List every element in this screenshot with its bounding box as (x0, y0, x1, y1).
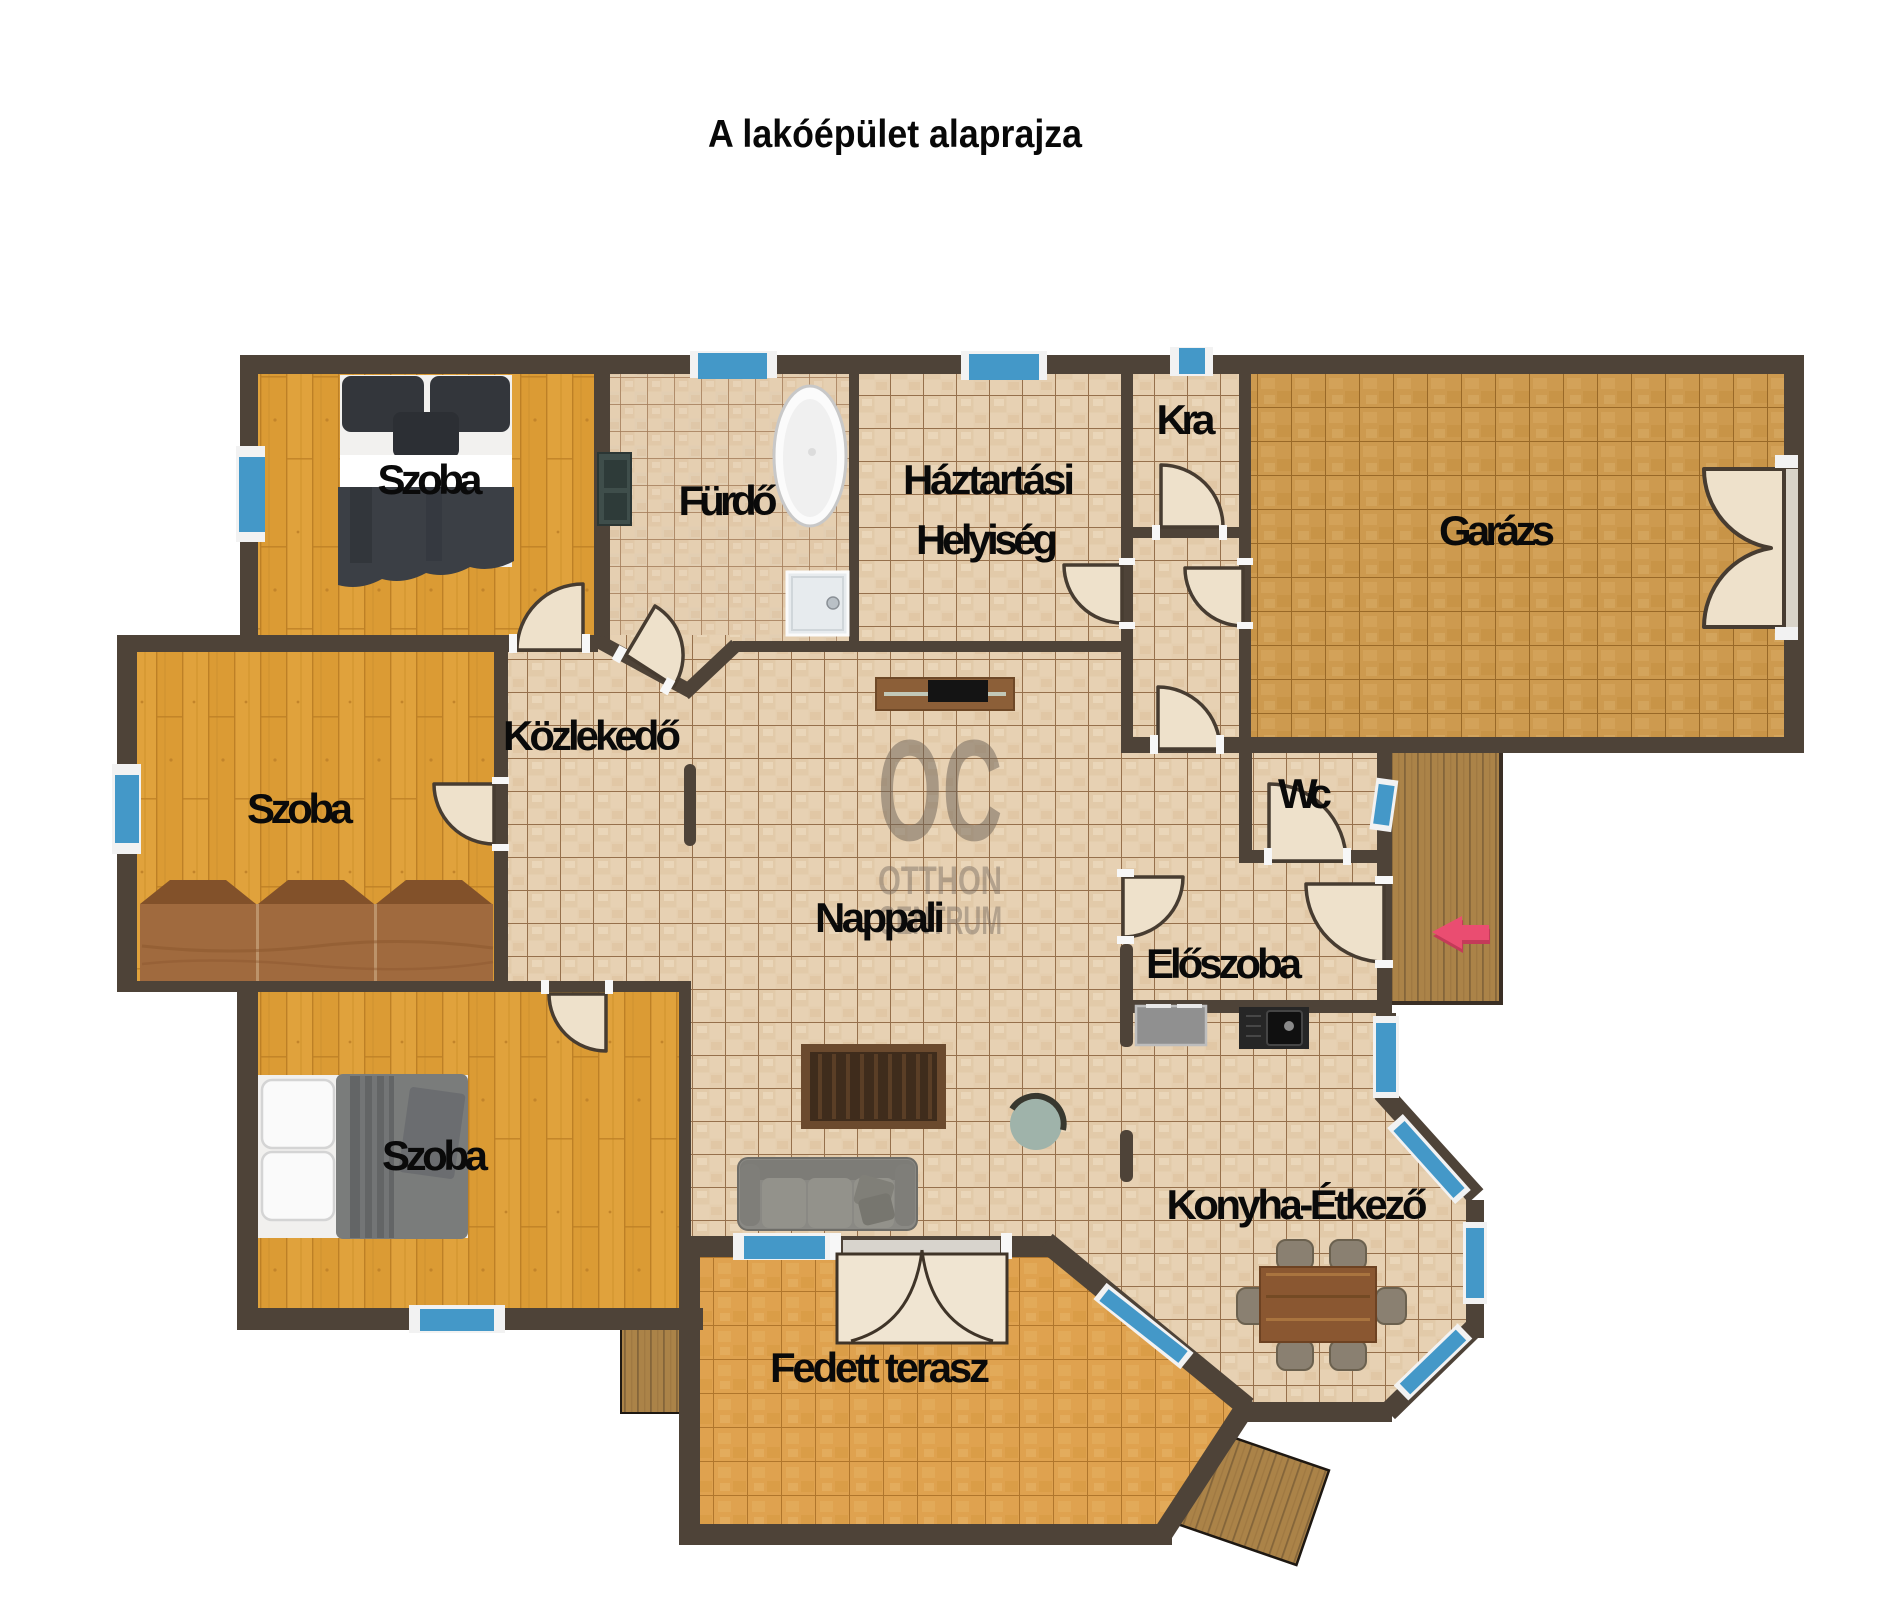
svg-text:Szoba: Szoba (247, 785, 354, 832)
svg-text:Szoba: Szoba (382, 1132, 489, 1179)
svg-text:Wc: Wc (1278, 770, 1332, 817)
svg-text:Konyha-Étkező: Konyha-Étkező (1167, 1181, 1428, 1228)
svg-text:Garázs: Garázs (1439, 507, 1555, 554)
svg-text:Fedett terasz: Fedett terasz (770, 1344, 990, 1391)
svg-text:Előszoba: Előszoba (1146, 940, 1303, 987)
svg-text:Háztartási: Háztartási (903, 456, 1075, 503)
svg-text:Kra: Kra (1157, 396, 1217, 443)
svg-text:Közlekedő: Közlekedő (503, 712, 681, 759)
svg-text:OC: OC (878, 710, 1003, 871)
svg-text:Nappali: Nappali (815, 894, 945, 941)
svg-text:Helyiség: Helyiség (916, 516, 1058, 563)
svg-text:Fürdő: Fürdő (679, 477, 778, 524)
svg-text:A lakóépület alaprajza: A lakóépület alaprajza (708, 113, 1082, 156)
svg-text:Szoba: Szoba (378, 456, 484, 503)
